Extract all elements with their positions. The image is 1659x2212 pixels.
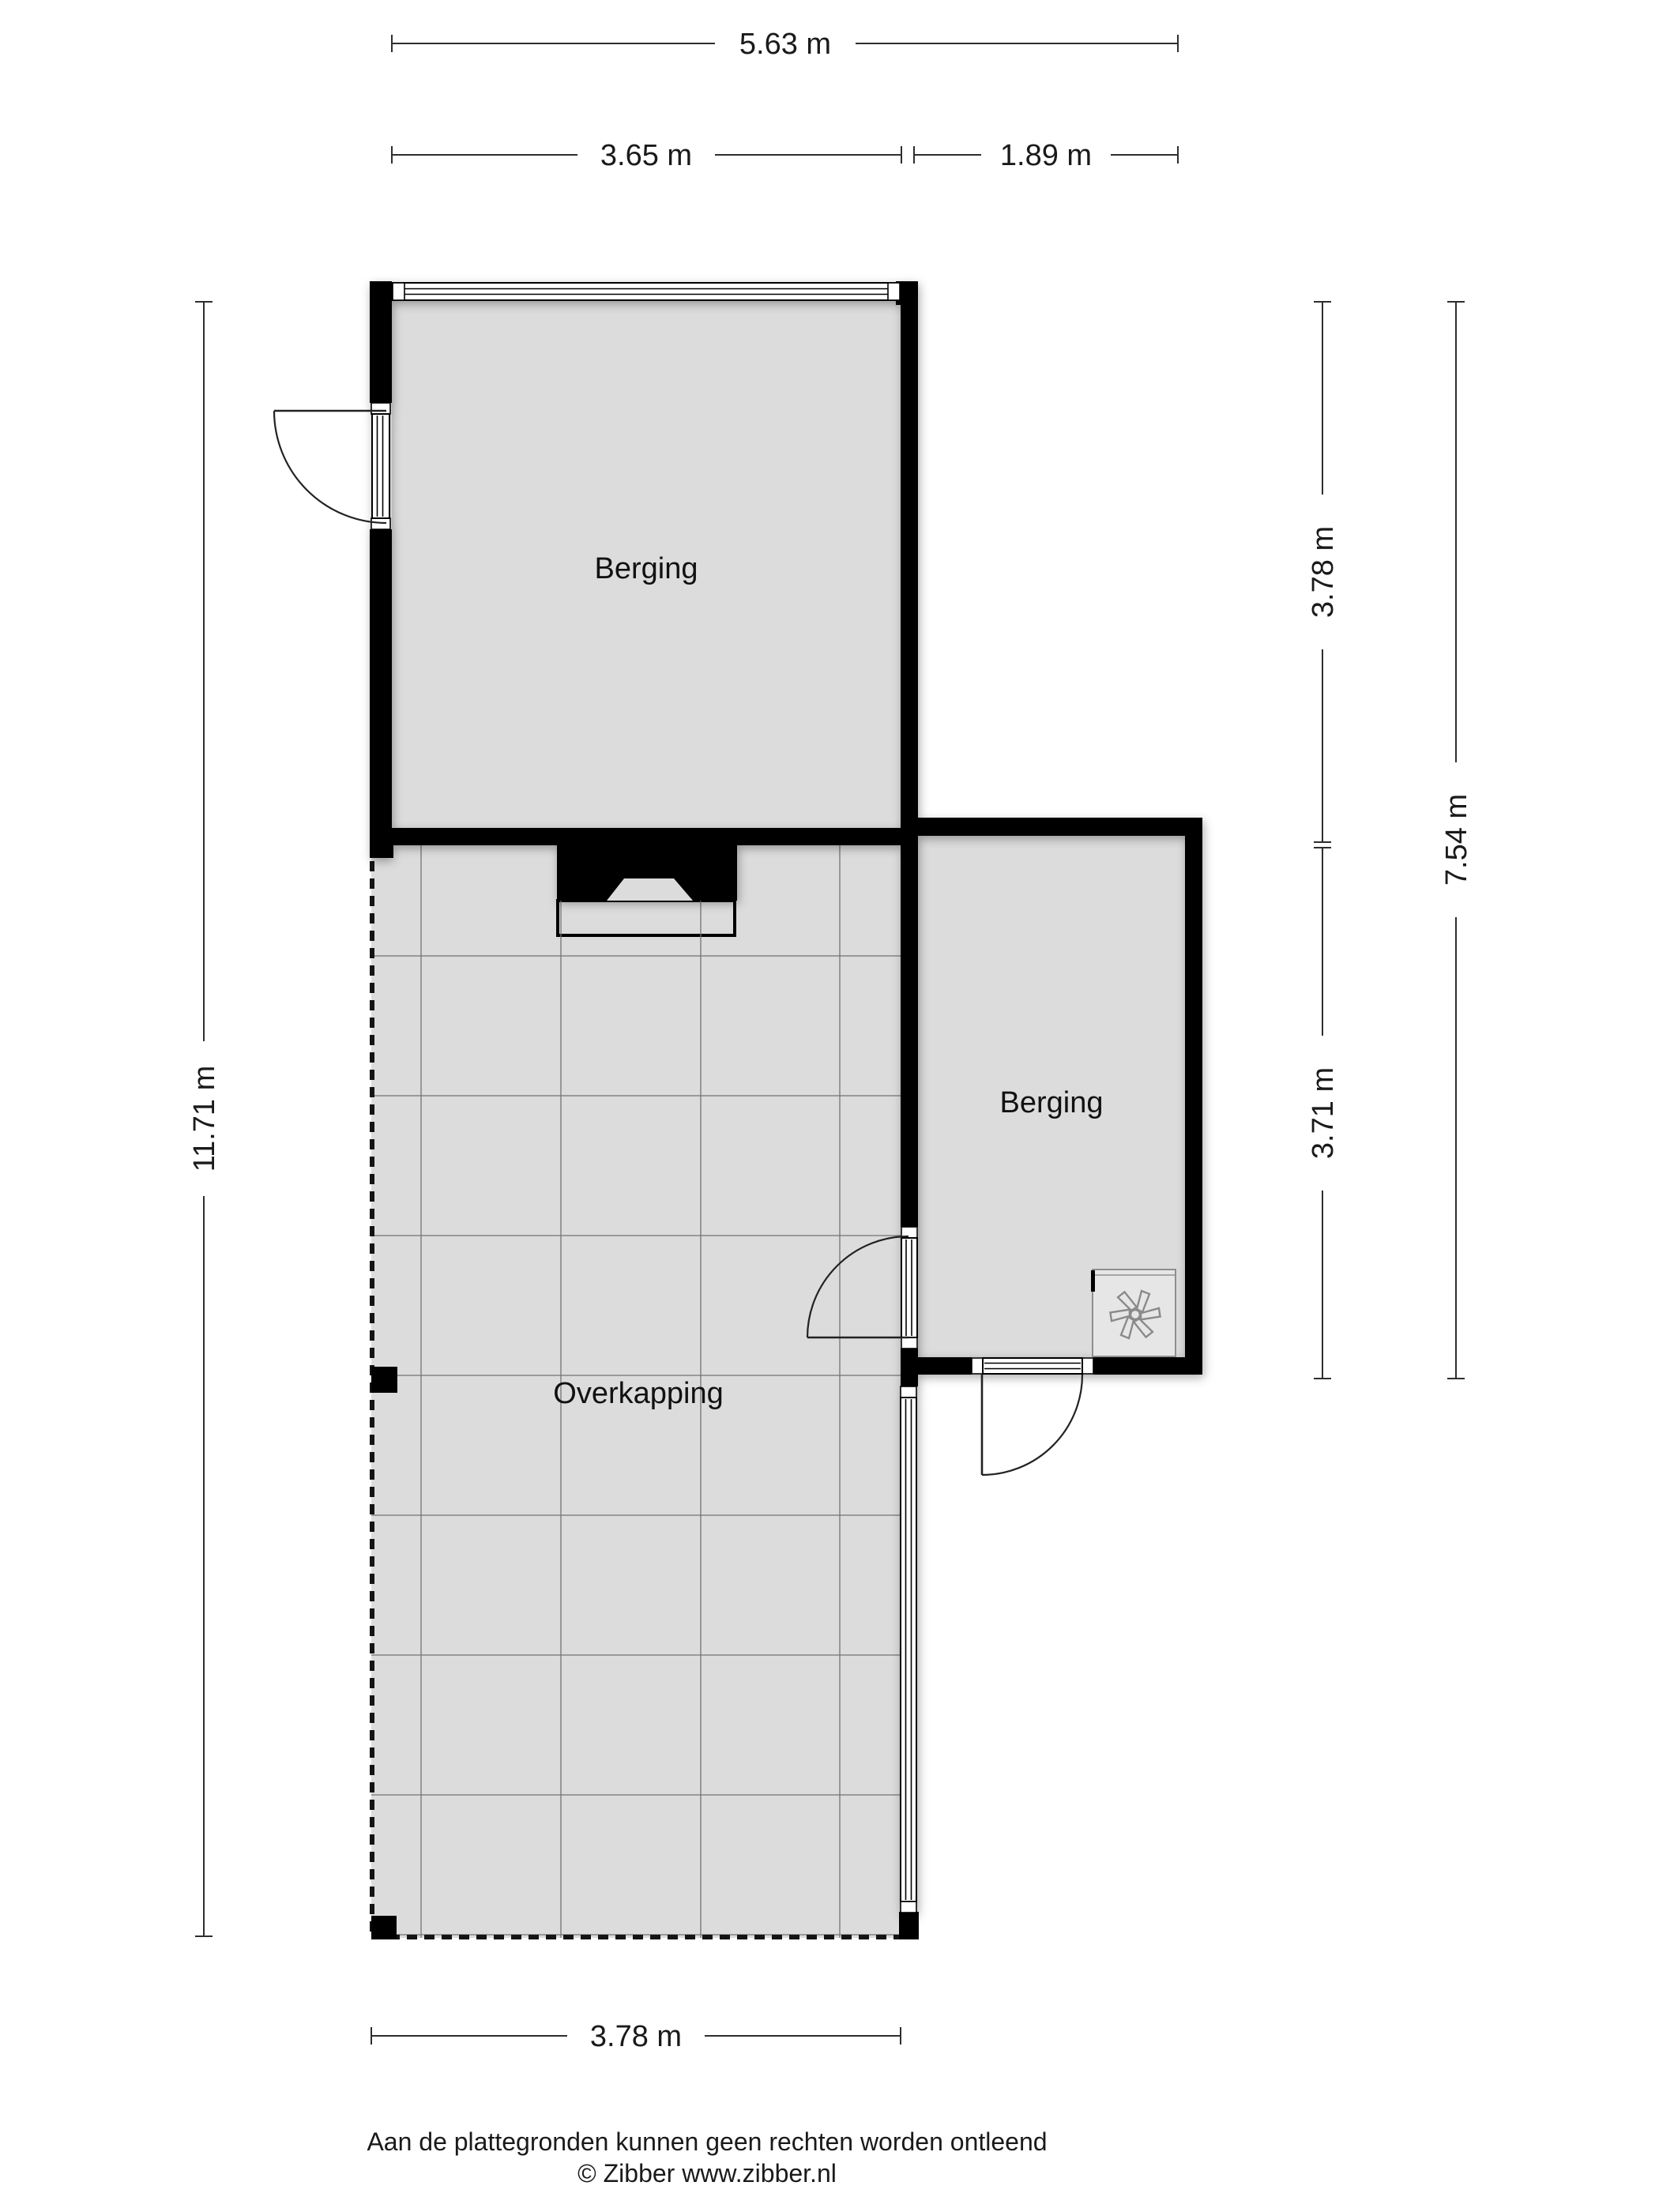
footer-disclaimer: Aan de plattegronden kunnen geen rechten… [367,2127,1047,2156]
dimension-top-total: 5.63 m [392,28,1178,61]
dimension-top-berging1: 3.65 m [392,139,901,172]
footer-copyright: © Zibber www.zibber.nl [577,2159,837,2188]
window-top [392,283,901,300]
wall-segment [901,1349,918,1386]
svg-text:3.71 m: 3.71 m [1307,1067,1340,1159]
wall-segment [370,281,392,403]
door-swing-left [274,411,386,523]
door-frame-berging2-left [901,1227,918,1349]
dimension-right-berging2: 3.71 m [1307,848,1340,1379]
post-bottom-left [371,1916,397,1939]
wall-segment [1093,1357,1202,1375]
svg-text:3.78 m: 3.78 m [590,2020,682,2053]
dimension-top-berging2: 1.89 m [914,139,1178,172]
entry-step [558,901,735,935]
post-bottom-right [899,1912,919,1939]
post-mid-left [371,1367,397,1393]
wall-segment [918,818,1202,836]
ventilation-unit [1091,1270,1176,1356]
door-frame-left [371,403,390,529]
dimension-right-total: 7.54 m [1440,302,1473,1379]
floorplan-page: Berging Berging Overkapping 5.63 m 3.65 … [0,0,1659,2212]
room-label-berging-2: Berging [1000,1086,1104,1119]
wall-segment [918,1357,972,1375]
door-frame-berging2-bottom [972,1357,1093,1375]
svg-text:3.78 m: 3.78 m [1307,526,1340,618]
room-label-overkapping: Overkapping [553,1377,723,1410]
room-label-berging-1: Berging [595,552,698,585]
window-strip-right-edge [901,1386,916,1913]
door-swing-berging2-bottom [982,1375,1082,1475]
dimension-left-total: 11.71 m [188,302,221,1936]
wall-segment [1185,818,1202,1375]
wall-segment [370,828,918,845]
svg-text:7.54 m: 7.54 m [1440,794,1473,886]
wall-segment [370,529,392,858]
floorplan-svg: Berging Berging Overkapping 5.63 m 3.65 … [0,0,1659,2212]
dimension-right-berging1: 3.78 m [1307,302,1340,842]
svg-text:1.89 m: 1.89 m [1000,139,1092,172]
svg-text:5.63 m: 5.63 m [739,28,831,61]
svg-text:11.71 m: 11.71 m [188,1066,221,1172]
wall-segment [901,281,918,1227]
svg-text:3.65 m: 3.65 m [600,139,692,172]
dimension-bottom-overkapping: 3.78 m [371,2020,901,2053]
